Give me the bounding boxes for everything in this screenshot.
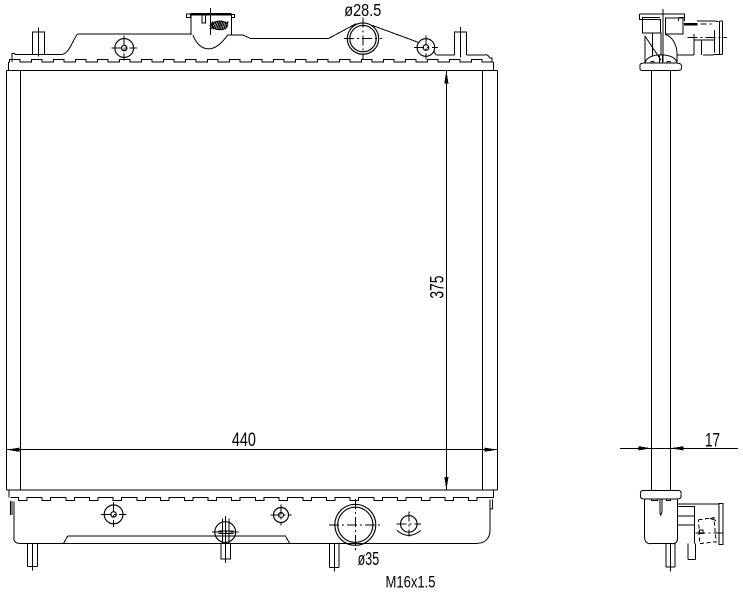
svg-text:ø35: ø35 (358, 549, 380, 569)
svg-text:440: 440 (232, 429, 256, 451)
svg-text:375: 375 (427, 276, 449, 299)
svg-text:17: 17 (705, 430, 720, 452)
svg-text:ø28.5: ø28.5 (344, 0, 381, 20)
svg-text:M16x1.5: M16x1.5 (386, 573, 436, 591)
